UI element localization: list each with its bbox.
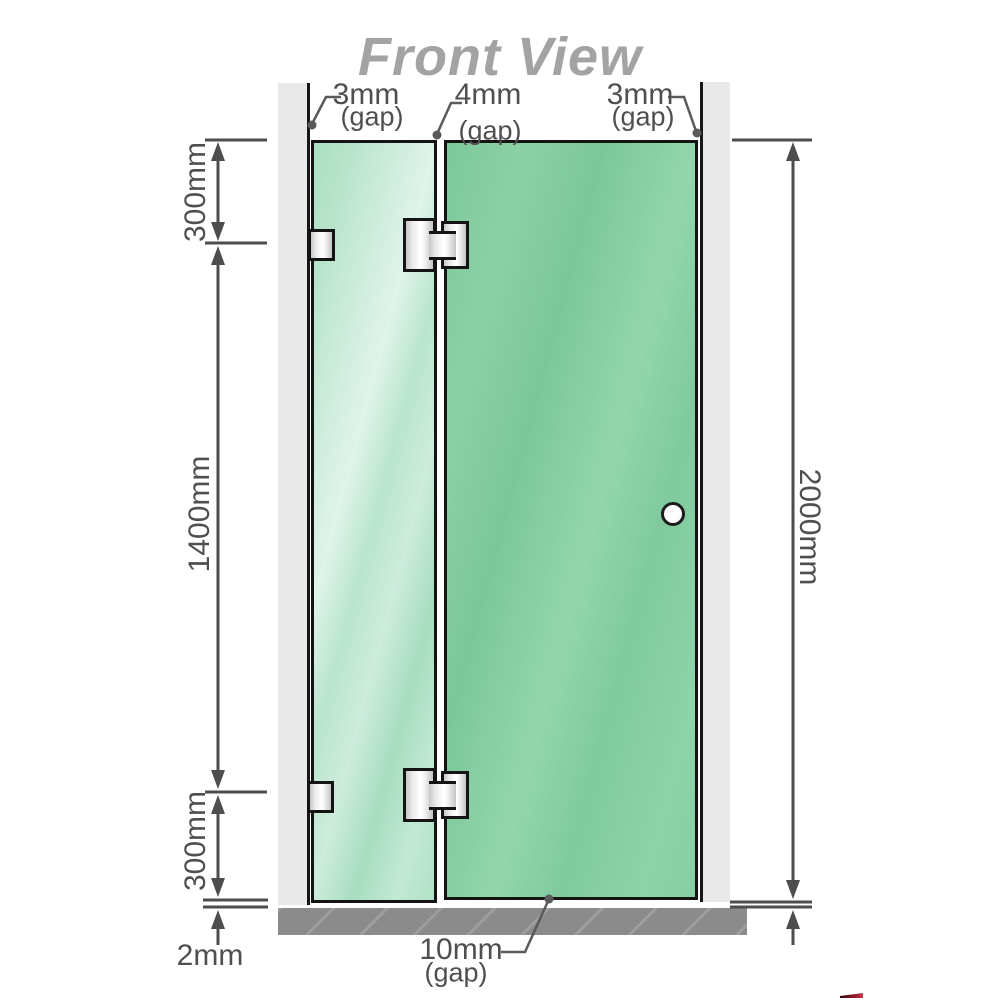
dim-left-middle: 1400mm <box>185 456 215 573</box>
gap-top-middle-qualifier: (gap) <box>458 118 521 145</box>
dim-floor-gap: 2mm <box>177 941 244 971</box>
dim-right-height: 2000mm <box>794 469 824 586</box>
diagram-title: Front View <box>358 26 668 82</box>
gap-top-right-qualifier: (gap) <box>611 104 674 131</box>
gap-bottom-qualifier: (gap) <box>424 960 487 987</box>
door-knob-icon <box>661 502 685 526</box>
gap-top-left-qualifier: (gap) <box>340 104 403 131</box>
gap-top-middle-value: 4mm <box>455 80 522 110</box>
top-hinge-connector <box>429 231 456 260</box>
wall-bracket-top <box>308 229 335 261</box>
dim-left-bottom: 300mm <box>181 791 211 891</box>
left-wall <box>278 83 310 905</box>
floor-base <box>278 908 747 935</box>
dim-left-top: 300mm <box>181 142 211 242</box>
front-view-diagram: Front View <box>0 0 1000 1000</box>
cropped-logo-fragment <box>840 993 863 998</box>
bottom-hinge-connector <box>429 781 456 810</box>
wall-bracket-bottom <box>307 781 334 813</box>
right-wall <box>700 82 730 902</box>
door-glass-panel <box>444 140 698 900</box>
